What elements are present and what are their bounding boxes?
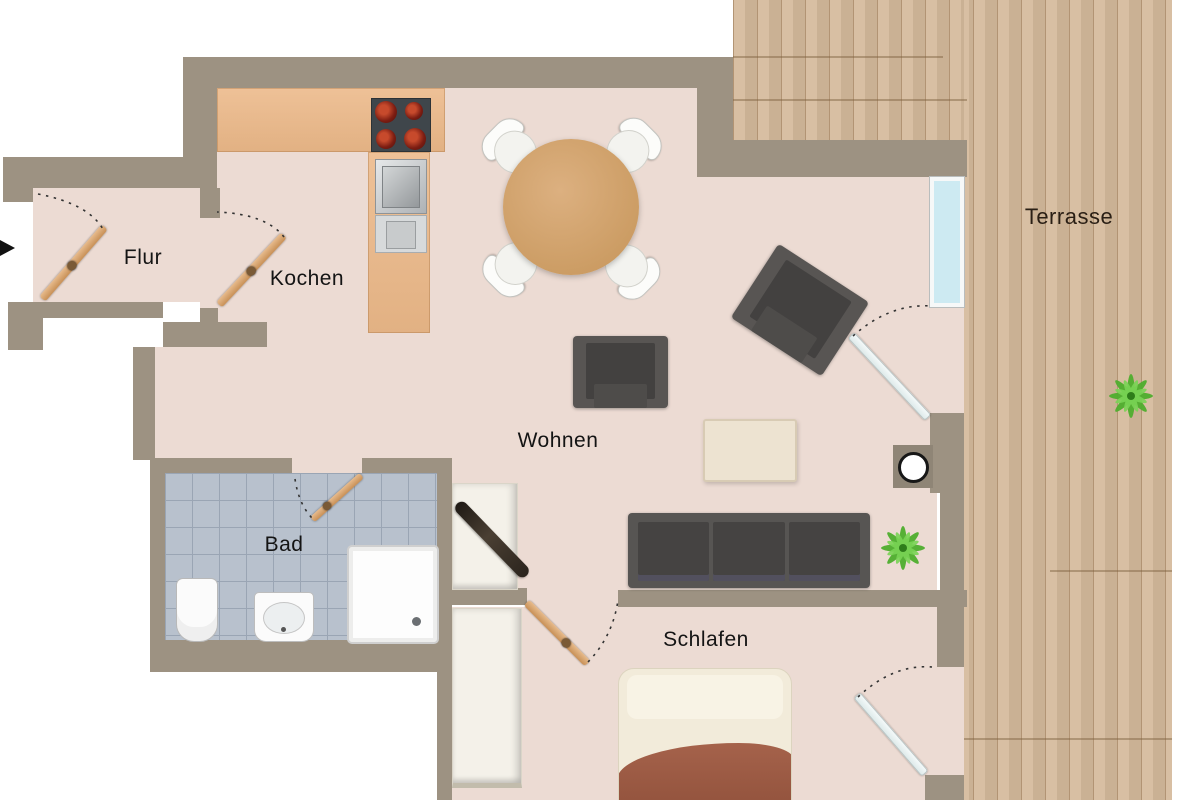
bath-door-opening: [292, 458, 362, 473]
stove: [371, 98, 431, 152]
kitchen-left-wall: [133, 347, 155, 460]
bath-bottom-wall: [150, 640, 452, 672]
bedroom-top-wall-right: [618, 590, 967, 607]
lamp-circle: [898, 452, 929, 483]
bed-blanket: [618, 743, 792, 800]
bath-top-wall-right: [362, 458, 437, 473]
plank-seam: [733, 99, 967, 101]
plant-terrace: [1105, 370, 1157, 422]
armchair: [573, 336, 668, 408]
bedroom-right-wall-lower: [925, 775, 964, 800]
wardrobe: [452, 608, 522, 788]
room-label-kochen: Kochen: [270, 267, 344, 291]
bath-top-wall-left: [150, 458, 292, 473]
burner: [376, 129, 396, 149]
bedroom-right-wall-upper: [937, 590, 964, 667]
center-vertical-wall: [437, 458, 452, 800]
sofa: [628, 513, 870, 588]
top-exterior-wall: [183, 57, 733, 88]
pedestal-lamp: [893, 445, 933, 488]
kitchen-door-jamb-top: [200, 188, 220, 218]
terrace-door-opening-bedroom: [930, 667, 964, 775]
shower: [347, 545, 439, 644]
hallway-top-wall: [8, 157, 217, 188]
bidet-drain: [281, 627, 286, 632]
kitchen-floor-lower: [155, 347, 217, 458]
kitchen-lower-wall-band: [163, 322, 267, 347]
toilet: [176, 578, 218, 642]
plant-living: [877, 522, 929, 574]
entrance-arrow: [0, 240, 15, 256]
dishwasher: [375, 215, 427, 253]
bedroom-door-opening: [527, 588, 618, 607]
bed-pillow-area: [627, 675, 783, 719]
plank-seam: [733, 56, 943, 58]
armchair-seat: [594, 384, 647, 408]
hallway-left-wall: [3, 157, 33, 202]
terrace-window: [930, 177, 964, 307]
burner: [404, 128, 426, 150]
bedroom-top-wall-left: [446, 588, 527, 605]
floor-plan: Flur Kochen Wohnen Bad Schlafen Terrasse: [0, 0, 1200, 800]
burner: [405, 102, 423, 120]
kitchen-door-opening: [200, 218, 220, 308]
kitchen-sink: [375, 159, 427, 214]
coffee-table: [703, 419, 797, 482]
sink-basin: [382, 166, 420, 208]
hallway-left-bottom-block: [8, 302, 43, 350]
room-label-terrasse: Terrasse: [1025, 204, 1113, 230]
room-label-schlafen: Schlafen: [663, 628, 749, 652]
right-wall-strip: [940, 493, 964, 590]
bidet: [254, 592, 314, 642]
right-wall-mid-column: [930, 413, 964, 493]
terrace-door-opening-living: [930, 307, 964, 413]
dining-table: [503, 139, 639, 275]
room-label-flur: Flur: [124, 246, 162, 270]
bed: [618, 668, 792, 800]
plank-seam: [1050, 570, 1172, 572]
plank-seam: [964, 738, 1172, 740]
sofa-cushions: [638, 522, 860, 581]
terrace-wall-band: [697, 140, 967, 177]
dishwasher-door-line: [386, 221, 416, 249]
room-label-bad: Bad: [265, 533, 304, 557]
shower-drain: [412, 617, 421, 626]
room-label-wohnen: Wohnen: [518, 429, 599, 453]
burner: [375, 101, 397, 123]
